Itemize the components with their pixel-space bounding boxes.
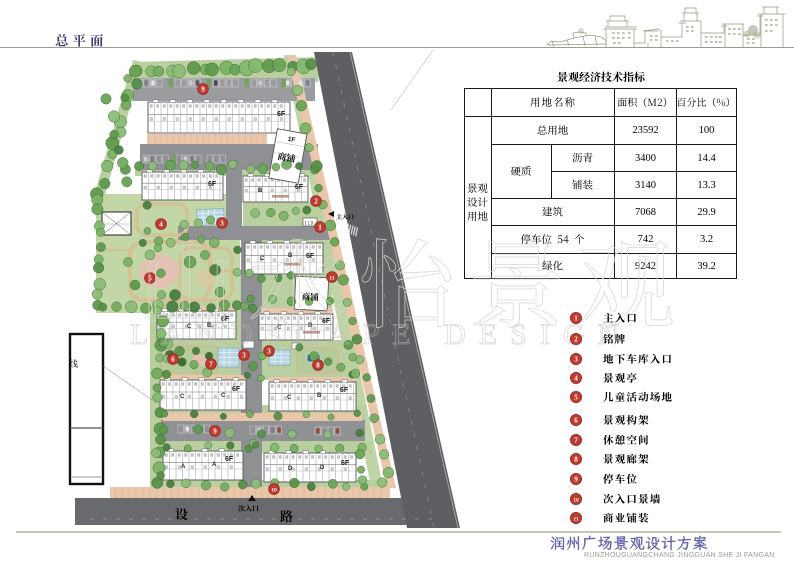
svg-text:1: 1	[574, 315, 578, 323]
svg-text:4: 4	[574, 375, 578, 383]
svg-text:9: 9	[574, 476, 578, 484]
svg-text:11: 11	[573, 517, 578, 523]
svg-text:2: 2	[574, 336, 578, 344]
svg-text:3: 3	[574, 356, 578, 364]
svg-text:10: 10	[573, 498, 579, 504]
svg-text:5: 5	[574, 394, 578, 402]
svg-text:7: 7	[574, 437, 578, 445]
svg-text:6: 6	[574, 417, 578, 425]
svg-text:8: 8	[574, 456, 578, 464]
